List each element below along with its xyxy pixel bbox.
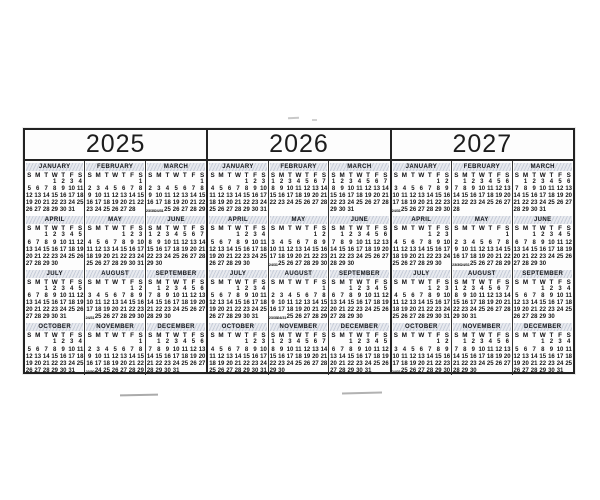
date-cell: 26	[208, 314, 216, 321]
weekday-label: T	[242, 278, 250, 286]
date-cell: 14	[521, 247, 530, 254]
date-cell: 17	[556, 300, 565, 307]
date-cell: 2	[355, 286, 364, 293]
date-cell: 3	[85, 293, 93, 300]
date-cell: 4	[364, 232, 373, 239]
date-cell: 27	[329, 368, 338, 375]
date-row: 282930	[452, 368, 511, 375]
date-row: 12131415161718	[208, 300, 267, 307]
year-title: 2025	[25, 130, 206, 161]
date-cell	[564, 368, 573, 375]
date-cell: 9	[269, 300, 277, 307]
date-cell: 20	[217, 254, 225, 261]
date-cell: 4	[259, 286, 267, 293]
weekday-header-row: SMTWTFS	[452, 331, 511, 339]
weekday-label: T	[119, 224, 127, 232]
date-row: 567891011	[513, 293, 573, 300]
date-cell: 25	[277, 261, 285, 268]
weekday-label: F	[311, 278, 319, 286]
date-cell	[146, 179, 155, 186]
weekday-header-row: SMTWTFS	[452, 278, 511, 286]
date-cell: 8	[146, 240, 155, 247]
date-row: 2345678	[452, 240, 511, 247]
weekday-label: W	[294, 331, 302, 339]
date-cell: 22	[521, 200, 530, 207]
date-row: 2345678	[85, 347, 144, 354]
date-cell: 19	[409, 361, 417, 368]
date-cell: 9	[547, 347, 556, 354]
date-cell: 12	[76, 240, 84, 247]
date-cell: 13	[329, 354, 338, 361]
date-cell: 13	[513, 247, 522, 254]
date-cell: 24	[556, 307, 565, 314]
date-cell: 26	[25, 207, 33, 214]
date-cell: 3	[392, 186, 400, 193]
date-row: 19202122232425	[208, 254, 267, 261]
date-row: 123456	[513, 179, 573, 186]
date-cell: 19	[208, 254, 216, 261]
date-cell: 3	[94, 347, 102, 354]
scan-mark	[342, 391, 382, 394]
weekday-label: T	[119, 278, 127, 286]
date-cell: 19	[364, 193, 373, 200]
date-cell: 7	[521, 240, 530, 247]
date-row: 12131415161718	[25, 193, 84, 200]
weekday-header-row: SMTWTFS	[208, 331, 267, 339]
date-row: 13141516171819	[329, 354, 389, 361]
date-row: 14151617181920	[452, 193, 511, 200]
date-cell: 30	[59, 207, 67, 214]
date-cell: 24	[59, 307, 67, 314]
date-cell: 30	[530, 207, 539, 214]
date-cell: 5	[364, 179, 373, 186]
date-cell	[547, 261, 556, 268]
date-row: 18192021222324	[208, 361, 267, 368]
date-cell: 9	[163, 293, 172, 300]
date-cell: 5	[303, 179, 311, 186]
date-row: 1234	[513, 339, 573, 346]
date-cell: 18	[547, 193, 556, 200]
date-cell: 25	[85, 261, 93, 268]
weekday-label: S	[85, 331, 93, 339]
date-cell: 23	[251, 361, 259, 368]
date-row: 22232425262728	[269, 200, 328, 207]
date-cell: 27	[217, 314, 225, 321]
date-cell: 16	[346, 247, 355, 254]
date-row: 3456789	[392, 347, 451, 354]
date-row: 11121314151617	[85, 247, 144, 254]
date-cell: 21	[521, 254, 530, 261]
weekday-label: T	[286, 278, 294, 286]
weekday-label: W	[355, 224, 364, 232]
date-cell: 8	[503, 240, 511, 247]
date-cell: 13	[119, 193, 127, 200]
date-cell: 10	[346, 186, 355, 193]
weekday-label: F	[251, 224, 259, 232]
date-row: 18192021222324	[208, 200, 267, 207]
date-cell: 2	[85, 186, 93, 193]
date-row: 14151617181920	[513, 193, 573, 200]
date-cell: 7	[311, 293, 319, 300]
date-cell: 1	[461, 179, 469, 186]
date-cell: 17	[478, 193, 486, 200]
date-cell: 11	[172, 240, 181, 247]
date-cell: 6	[503, 179, 511, 186]
date-row: 21222324252627	[452, 361, 511, 368]
date-cell	[521, 232, 530, 239]
date-cell: 5	[180, 232, 189, 239]
date-cell	[478, 232, 486, 239]
weekday-label: W	[478, 224, 486, 232]
date-cell: 10	[556, 347, 565, 354]
date-cell: 6	[521, 293, 530, 300]
date-cell	[277, 232, 285, 239]
date-cell: 18	[400, 200, 408, 207]
weekday-label: S	[381, 171, 390, 179]
date-cell: 16	[434, 300, 442, 307]
date-cell: 20	[294, 254, 302, 261]
date-cell: 21	[225, 254, 233, 261]
date-cell: 11	[486, 347, 494, 354]
date-cell	[495, 314, 503, 321]
month-september-2025: SEPTEMBERSMTWTFS123456789101112131415161…	[146, 268, 206, 321]
date-cell: 27	[180, 207, 189, 214]
date-cell: 20	[217, 307, 225, 314]
date-cell: 14	[452, 354, 460, 361]
weekday-label: F	[434, 278, 442, 286]
date-cell: 14	[225, 247, 233, 254]
date-cell: 17	[251, 300, 259, 307]
date-cell	[180, 368, 189, 375]
date-cell: 29	[346, 314, 355, 321]
date-row: 891011121314	[146, 240, 206, 247]
date-cell: 12	[381, 293, 390, 300]
date-cell: 9	[163, 347, 172, 354]
date-cell: 28	[234, 368, 242, 375]
date-cell: 14	[146, 354, 155, 361]
date-cell	[452, 232, 460, 239]
date-cell: 16	[443, 193, 451, 200]
date-cell: 13	[198, 347, 207, 354]
date-row: 20212223242526	[513, 254, 573, 261]
date-cell: 30	[547, 314, 556, 321]
weekday-label: W	[417, 331, 425, 339]
date-cell: 18	[486, 193, 494, 200]
weekday-header-row: SMTWTFS	[269, 331, 328, 339]
date-cell: 19	[478, 254, 486, 261]
date-cell: 2	[242, 286, 250, 293]
weekday-label: T	[547, 224, 556, 232]
date-cell: 2	[50, 286, 58, 293]
date-cell	[180, 261, 189, 268]
weekday-label: T	[469, 224, 477, 232]
date-cell: 29	[42, 314, 50, 321]
date-cell: 27	[303, 314, 311, 321]
weekday-label: S	[208, 331, 216, 339]
date-cell: 15	[136, 193, 144, 200]
month-may-2026: MAYSMTWTFS123456789101112131415161718192…	[269, 214, 329, 267]
date-row: 567891011	[513, 347, 573, 354]
date-cell: 28	[338, 314, 347, 321]
date-cell: 19	[513, 361, 522, 368]
date-cell: 2	[59, 339, 67, 346]
weekday-label: S	[513, 278, 522, 286]
weekday-label: S	[146, 278, 155, 286]
date-cell: 13	[521, 354, 530, 361]
date-cell: 24	[478, 200, 486, 207]
date-cell: 9	[434, 293, 442, 300]
date-cell	[94, 286, 102, 293]
date-cell: 16	[242, 300, 250, 307]
weekday-label: T	[426, 171, 434, 179]
date-cell: 22	[338, 254, 347, 261]
date-cell: 12	[364, 186, 373, 193]
date-cell: 24	[286, 361, 294, 368]
date-cell	[111, 232, 119, 239]
date-row: 16171819202122	[146, 200, 206, 207]
date-cell	[513, 179, 522, 186]
weekday-label: F	[311, 171, 319, 179]
date-cell: 25	[392, 261, 400, 268]
date-row: 12131415161718	[513, 354, 573, 361]
date-cell: 19	[303, 193, 311, 200]
date-row: 123	[208, 339, 267, 346]
date-cell: 13	[564, 186, 573, 193]
date-cell: 8	[311, 240, 319, 247]
weekday-header-row: SMTWTFS	[85, 224, 144, 232]
weekday-label: T	[547, 331, 556, 339]
date-cell: 21	[128, 361, 136, 368]
date-cell: 28	[452, 368, 460, 375]
month-name: FEBRUARY	[270, 163, 327, 171]
date-cell: 30	[547, 368, 556, 375]
date-cell: 15	[346, 354, 355, 361]
date-cell: 21	[33, 307, 41, 314]
date-cell: 14	[426, 193, 434, 200]
weekday-label: F	[434, 331, 442, 339]
date-row: 17181920212223	[269, 254, 328, 261]
date-cell: 26	[486, 307, 494, 314]
date-cell: 13	[311, 347, 319, 354]
month-name: JUNE	[514, 216, 572, 224]
date-row: 891011121314	[452, 293, 511, 300]
date-cell: 17	[286, 354, 294, 361]
date-cell	[556, 261, 565, 268]
weekday-header-row: SMTWTFS	[513, 278, 573, 286]
date-cell	[303, 368, 311, 375]
weekday-label: M	[400, 224, 408, 232]
date-row: 3456789	[392, 186, 451, 193]
date-cell: 6	[33, 186, 41, 193]
date-cell: 7	[234, 186, 242, 193]
date-cell: 24/31	[85, 314, 93, 321]
date-cell	[392, 286, 400, 293]
date-row: 123456	[452, 179, 511, 186]
date-cell: 10	[67, 347, 75, 354]
date-row: 25262728293031	[392, 314, 451, 321]
date-cell: 4	[486, 179, 494, 186]
weekday-label: F	[495, 278, 503, 286]
date-cell: 20	[33, 361, 41, 368]
date-cell: 21	[146, 307, 155, 314]
date-row: 2728293031	[25, 314, 84, 321]
date-cell: 16	[320, 247, 328, 254]
date-cell: 16	[155, 247, 164, 254]
date-cell: 29	[242, 368, 250, 375]
date-cell: 28	[417, 314, 425, 321]
weekday-label: W	[172, 331, 181, 339]
date-cell: 22	[426, 254, 434, 261]
date-cell: 20	[198, 354, 207, 361]
date-cell: 25	[294, 200, 302, 207]
date-cell: 30	[346, 261, 355, 268]
date-cell: 15	[128, 300, 136, 307]
date-cell: 24	[94, 207, 102, 214]
month-name: MAY	[453, 216, 510, 224]
date-row: 24/31252627282930	[269, 261, 328, 268]
date-cell: 18	[556, 247, 565, 254]
date-cell	[163, 261, 172, 268]
month-september-2026: SEPTEMBERSMTWTFS123456789101112131415161…	[329, 268, 389, 321]
date-cell: 23	[355, 307, 364, 314]
weekday-label: M	[400, 331, 408, 339]
date-cell: 7	[33, 293, 41, 300]
date-cell: 13	[225, 193, 233, 200]
weekday-label: W	[234, 278, 242, 286]
date-cell: 31	[136, 261, 144, 268]
date-cell: 6	[409, 293, 417, 300]
weekday-label: S	[146, 171, 155, 179]
weekday-label: T	[225, 278, 233, 286]
date-cell: 28	[381, 200, 390, 207]
date-cell: 23	[434, 254, 442, 261]
date-cell: 23	[547, 307, 556, 314]
date-cell: 11	[294, 347, 302, 354]
date-row: 17181920212223	[392, 200, 451, 207]
date-cell	[372, 207, 381, 214]
date-cell: 29	[155, 314, 164, 321]
date-cell: 18	[259, 247, 267, 254]
date-cell: 14	[503, 293, 511, 300]
date-cell: 22	[538, 307, 547, 314]
date-cell	[198, 314, 207, 321]
date-cell: 6	[225, 347, 233, 354]
date-cell: 10	[478, 347, 486, 354]
date-cell	[503, 368, 511, 375]
weekday-label: M	[94, 331, 102, 339]
date-cell: 29	[50, 207, 58, 214]
date-row: 12131415161718	[25, 354, 84, 361]
weekday-label: F	[495, 224, 503, 232]
date-cell: 7	[513, 186, 522, 193]
weekday-label: S	[85, 171, 93, 179]
date-cell	[189, 314, 198, 321]
date-cell: 9	[136, 293, 144, 300]
date-row: 22232425262728	[329, 200, 389, 207]
weekday-label: M	[33, 224, 41, 232]
date-row: 12345	[25, 286, 84, 293]
date-row	[269, 207, 328, 214]
date-cell: 16	[59, 354, 67, 361]
date-cell: 11	[277, 247, 285, 254]
date-cell: 6	[564, 179, 573, 186]
date-cell: 21	[503, 300, 511, 307]
date-cell: 14	[234, 193, 242, 200]
date-row: 18192021222324	[392, 254, 451, 261]
date-row: 28	[452, 207, 511, 214]
weekday-label: T	[426, 331, 434, 339]
date-cell: 8	[434, 186, 442, 193]
date-cell	[329, 339, 338, 346]
date-cell: 17	[155, 200, 164, 207]
date-cell: 28	[42, 207, 50, 214]
weekday-label: M	[461, 278, 469, 286]
date-cell: 23	[163, 361, 172, 368]
date-cell: 8	[234, 240, 242, 247]
date-cell: 14	[111, 247, 119, 254]
date-cell: 15	[42, 247, 50, 254]
weekday-label: F	[495, 331, 503, 339]
date-cell	[217, 286, 225, 293]
date-cell: 16	[59, 193, 67, 200]
weekday-label: S	[198, 278, 207, 286]
date-cell: 18	[259, 300, 267, 307]
date-cell: 10	[251, 293, 259, 300]
weekday-label: T	[346, 331, 355, 339]
date-cell: 6	[217, 293, 225, 300]
weekday-label: S	[76, 224, 84, 232]
date-cell: 23	[469, 361, 477, 368]
date-cell: 4	[67, 286, 75, 293]
weekday-label: F	[556, 278, 565, 286]
weekday-label: W	[538, 224, 547, 232]
date-cell: 23	[320, 254, 328, 261]
weekday-label: S	[259, 171, 267, 179]
weekday-label: F	[556, 171, 565, 179]
date-cell: 30	[50, 314, 58, 321]
date-cell: 21	[320, 354, 328, 361]
month-name: DECEMBER	[147, 323, 205, 331]
weekday-label: W	[111, 278, 119, 286]
date-cell: 29	[234, 314, 242, 321]
date-cell: 21	[452, 361, 460, 368]
weekday-label: M	[521, 278, 530, 286]
date-cell: 30	[50, 261, 58, 268]
date-cell: 7	[338, 347, 347, 354]
date-cell: 21	[530, 307, 539, 314]
date-cell: 17	[443, 300, 451, 307]
weekday-label: S	[320, 278, 328, 286]
date-cell: 27	[225, 207, 233, 214]
date-row: 21222324252627	[452, 200, 511, 207]
date-row: 293031	[452, 314, 511, 321]
date-cell: 16	[355, 300, 364, 307]
date-cell	[259, 261, 267, 268]
date-cell	[189, 368, 198, 375]
date-cell: 1	[155, 339, 164, 346]
date-cell: 5	[286, 240, 294, 247]
date-cell: 16	[146, 200, 155, 207]
date-cell	[400, 286, 408, 293]
date-cell: 7	[234, 347, 242, 354]
date-cell: 6	[33, 347, 41, 354]
date-cell: 17	[346, 193, 355, 200]
date-cell: 5	[94, 240, 102, 247]
weekday-label: F	[372, 224, 381, 232]
date-cell	[564, 207, 573, 214]
date-cell: 20	[417, 361, 425, 368]
date-cell: 14	[42, 354, 50, 361]
